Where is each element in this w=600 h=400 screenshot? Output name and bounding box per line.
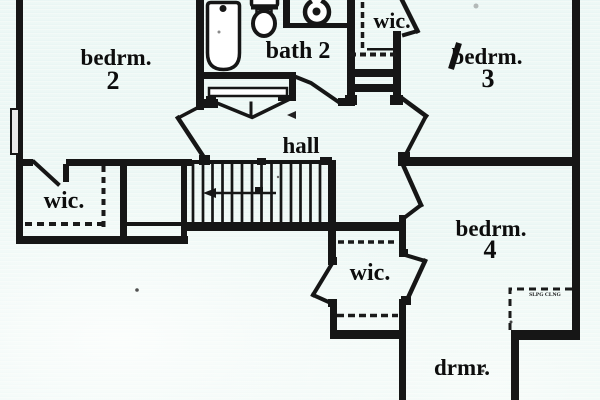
svg-text:wic.: wic. (44, 188, 85, 214)
svg-text:drmr.: drmr. (434, 355, 490, 380)
svg-text:wic.: wic. (350, 260, 391, 286)
svg-text:3: 3 (482, 64, 495, 93)
svg-text:bath 2: bath 2 (266, 38, 331, 64)
svg-text:hall: hall (282, 133, 319, 158)
svg-text:2: 2 (107, 66, 120, 95)
svg-text:wic.: wic. (373, 8, 410, 33)
svg-text:4: 4 (484, 235, 497, 264)
svg-text:SLPG CLNG: SLPG CLNG (529, 292, 561, 298)
